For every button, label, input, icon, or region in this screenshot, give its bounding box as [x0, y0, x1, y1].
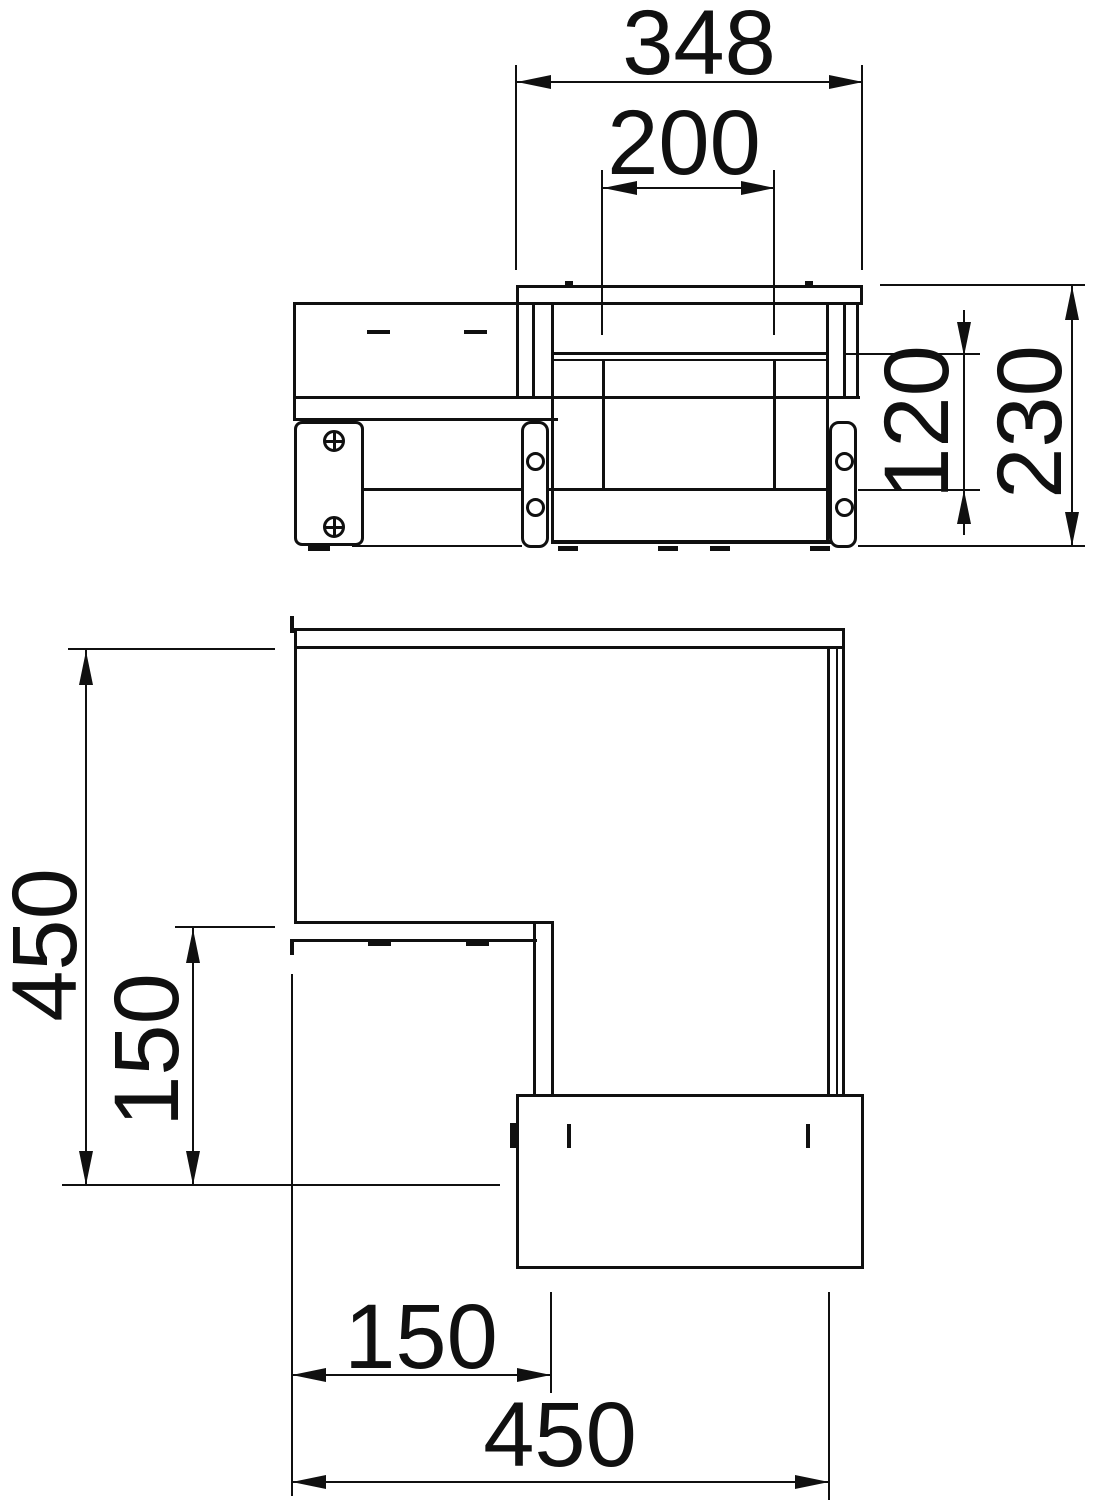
bracket-hole [835, 452, 854, 471]
extension-line [291, 974, 293, 1496]
mounting-bracket-left [521, 421, 549, 548]
rail-right-outer [842, 628, 845, 1096]
dimension-arrow [957, 490, 971, 524]
dim-label-plan-inner-depth: 150 [112, 900, 182, 1200]
back-edge-inner [296, 646, 845, 649]
dimension-line [85, 650, 87, 1185]
shelf-notch [466, 942, 489, 946]
screw-icon [323, 516, 345, 538]
frame-post [516, 302, 519, 399]
dimension-arrow [517, 75, 551, 89]
shelf-edge-outer [294, 921, 554, 924]
screw-icon [323, 430, 345, 452]
wall-tab [290, 616, 294, 633]
bin-right-side [773, 359, 776, 490]
bin-rim-line [551, 352, 829, 355]
dimension-line [292, 1481, 829, 1483]
dimension-arrow [517, 1368, 551, 1382]
bracket-hole [526, 452, 545, 471]
rail-left-inner [551, 921, 554, 1096]
foot-pad [810, 546, 830, 551]
frame-post [843, 302, 846, 399]
extension-line [68, 648, 275, 650]
extension-line [858, 545, 1085, 547]
foot-pad [308, 546, 330, 551]
back-edge-outer [296, 628, 845, 631]
dim-label-plan-overall-depth: 450 [10, 795, 80, 1095]
plan-left-edge [294, 628, 297, 924]
dim-label-front-frame-height: 120 [882, 272, 952, 572]
top-plate-right-edge [860, 285, 863, 305]
dim-label-plan-front-offset: 150 [271, 1302, 571, 1372]
door-slot [464, 330, 487, 334]
dimension-arrow [186, 1151, 200, 1185]
box-edge-notch [510, 1123, 519, 1148]
extension-line [515, 65, 517, 270]
dimension-arrow [292, 1475, 326, 1489]
bracket-hole [835, 498, 854, 517]
box-slot [567, 1124, 571, 1148]
extension-line [601, 170, 603, 335]
rail-left-outer [533, 921, 536, 1096]
foot-pad [658, 546, 678, 551]
dimension-arrow [957, 322, 971, 356]
plate-pin [565, 281, 573, 286]
dimension-line [292, 1374, 551, 1376]
extension-line [880, 284, 1085, 286]
dimension-arrow [79, 1151, 93, 1185]
dimension-arrow [1065, 512, 1079, 546]
dimension-arrow [292, 1368, 326, 1382]
cabinet-bottom-line [352, 545, 522, 547]
bin-left-side [602, 359, 605, 490]
dimension-arrow [603, 181, 637, 195]
dimension-arrow [186, 929, 200, 963]
technical-drawing: 348 200 120 230 [0, 0, 1093, 1500]
bin-rim-line [551, 359, 829, 361]
dimension-line [517, 81, 863, 83]
box-slot [806, 1124, 810, 1148]
extension-line [773, 170, 775, 335]
unit-left-wall [551, 302, 554, 544]
shelf-edge-inner [294, 939, 537, 942]
frame-post [532, 302, 535, 399]
dimension-arrow [795, 1475, 829, 1489]
top-plate-bottom-edge [293, 302, 863, 305]
lower-shelf-line [362, 488, 829, 491]
bracket-hole [526, 498, 545, 517]
dim-label-front-overall-width: 348 [549, 8, 849, 78]
door-left-edge [293, 302, 296, 421]
bin-bottom-line [551, 540, 841, 544]
cabinet-mid-line [293, 396, 860, 399]
dimension-arrow [829, 75, 863, 89]
dimension-line [1071, 286, 1073, 546]
dimension-line [192, 928, 194, 1185]
dimension-arrow [741, 181, 775, 195]
dim-label-front-overall-height: 230 [995, 272, 1065, 572]
extension-line [861, 65, 863, 270]
mounting-bracket-right [829, 421, 857, 548]
dim-label-front-inner-width: 200 [534, 108, 834, 178]
dimension-arrow [79, 651, 93, 685]
door-slot [367, 330, 390, 334]
plate-pin [805, 281, 813, 286]
foot-pad [558, 546, 578, 551]
extension-line [828, 1292, 830, 1500]
rail-right-mid [836, 646, 838, 1096]
foot-pad [710, 546, 730, 551]
front-box [516, 1094, 864, 1269]
extension-line [175, 926, 275, 928]
dimension-arrow [1065, 286, 1079, 320]
dim-label-plan-overall-width: 450 [410, 1400, 710, 1470]
frame-post [856, 302, 859, 399]
rail-right-inner [827, 646, 830, 1096]
shelf-notch [368, 942, 391, 946]
